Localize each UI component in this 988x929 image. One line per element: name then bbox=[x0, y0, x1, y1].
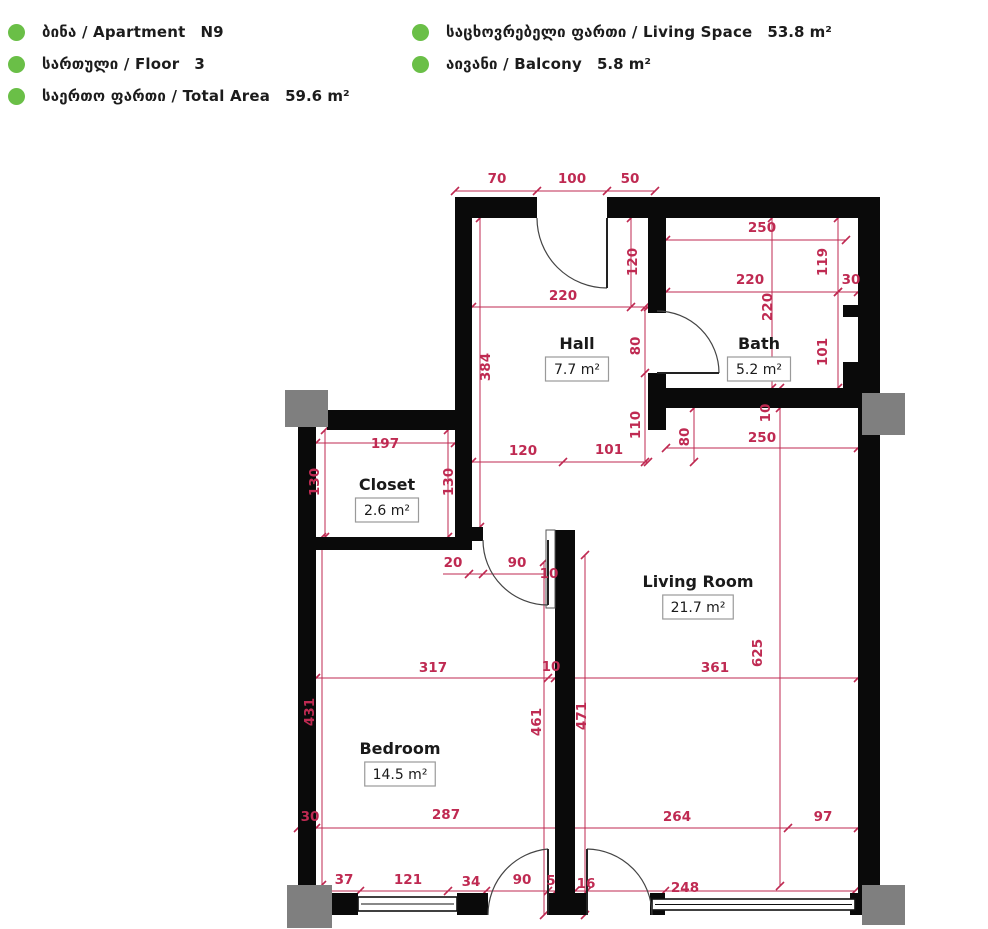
dimension-label: 220 bbox=[760, 293, 776, 321]
dimension-label: 100 bbox=[558, 171, 586, 187]
dimension-label: 287 bbox=[432, 807, 460, 823]
dimension-label: 90 bbox=[513, 872, 532, 888]
dimension-label: 50 bbox=[621, 171, 640, 187]
dimension-label: 317 bbox=[419, 660, 447, 676]
dimension-label: 220 bbox=[549, 288, 577, 304]
floor-plan: Hall7.7 m²Bath5.2 m²Closet2.6 m²Living R… bbox=[0, 0, 988, 929]
room-name-label: Bedroom bbox=[359, 739, 440, 758]
dimension-label: 384 bbox=[478, 353, 494, 381]
column bbox=[862, 393, 905, 435]
door-swing-arc bbox=[587, 849, 652, 915]
dimension-label: 5 bbox=[546, 873, 555, 889]
dimension-label: 119 bbox=[815, 248, 831, 276]
column bbox=[862, 885, 905, 925]
room-name-label: Living Room bbox=[643, 572, 754, 591]
wall bbox=[455, 197, 537, 218]
dimension-label: 30 bbox=[842, 272, 861, 288]
wall bbox=[327, 410, 472, 430]
dimension-label: 431 bbox=[302, 698, 318, 726]
dimension-label: 250 bbox=[748, 220, 776, 236]
dimension-label: 30 bbox=[301, 809, 320, 825]
room-area-label: 2.6 m² bbox=[364, 503, 410, 519]
dimension-label: 120 bbox=[509, 443, 537, 459]
column bbox=[287, 885, 332, 928]
wall bbox=[455, 218, 472, 540]
column bbox=[285, 390, 328, 427]
room-area-label: 7.7 m² bbox=[554, 362, 600, 378]
door-swing-arc bbox=[657, 311, 719, 373]
dimension-label: 97 bbox=[814, 809, 833, 825]
dimension-label: 34 bbox=[462, 874, 481, 890]
dimension-label: 20 bbox=[444, 555, 463, 571]
dimension-label: 80 bbox=[628, 337, 644, 356]
dimension-label: 130 bbox=[441, 468, 457, 496]
wall bbox=[316, 537, 472, 550]
dimension-label: 625 bbox=[750, 639, 766, 667]
dimension-label: 220 bbox=[736, 272, 764, 288]
room-area-label: 21.7 m² bbox=[671, 600, 726, 616]
dimension-label: 16 bbox=[577, 876, 596, 892]
room-name-label: Closet bbox=[359, 475, 416, 494]
room-name-label: Bath bbox=[738, 334, 780, 353]
wall bbox=[843, 362, 858, 408]
room-area-label: 14.5 m² bbox=[373, 767, 428, 783]
dimension-label: 101 bbox=[815, 338, 831, 366]
wall bbox=[457, 893, 488, 915]
wall bbox=[843, 305, 880, 317]
dimension-label: 110 bbox=[628, 411, 644, 439]
wall bbox=[858, 197, 880, 915]
wall bbox=[607, 197, 880, 218]
dimension-label: 130 bbox=[307, 468, 323, 496]
dimension-label: 248 bbox=[671, 880, 699, 896]
dimension-label: 90 bbox=[508, 555, 527, 571]
dimension-label: 101 bbox=[595, 442, 623, 458]
dimension-label: 250 bbox=[748, 430, 776, 446]
dimension-label: 121 bbox=[394, 872, 422, 888]
dimension-label: 120 bbox=[625, 248, 641, 276]
room-name-label: Hall bbox=[559, 334, 594, 353]
dimension-label: 80 bbox=[677, 428, 693, 447]
dimension-label: 197 bbox=[371, 436, 399, 452]
dimension-label: 10 bbox=[758, 404, 774, 423]
dimension-label: 37 bbox=[335, 872, 354, 888]
dimension-label: 264 bbox=[663, 809, 691, 825]
room-area-label: 5.2 m² bbox=[736, 362, 782, 378]
dimension-label: 10 bbox=[540, 566, 559, 582]
wall bbox=[548, 893, 587, 915]
door-swing-arc bbox=[537, 218, 607, 288]
wall bbox=[648, 218, 666, 313]
dimension-label: 10 bbox=[542, 659, 561, 675]
dimension-label: 70 bbox=[488, 171, 507, 187]
dimension-label: 461 bbox=[529, 708, 545, 736]
dimension-label: 471 bbox=[574, 702, 590, 730]
door-swing-arc bbox=[483, 540, 548, 605]
wall bbox=[555, 530, 575, 915]
dimension-label: 361 bbox=[701, 660, 729, 676]
